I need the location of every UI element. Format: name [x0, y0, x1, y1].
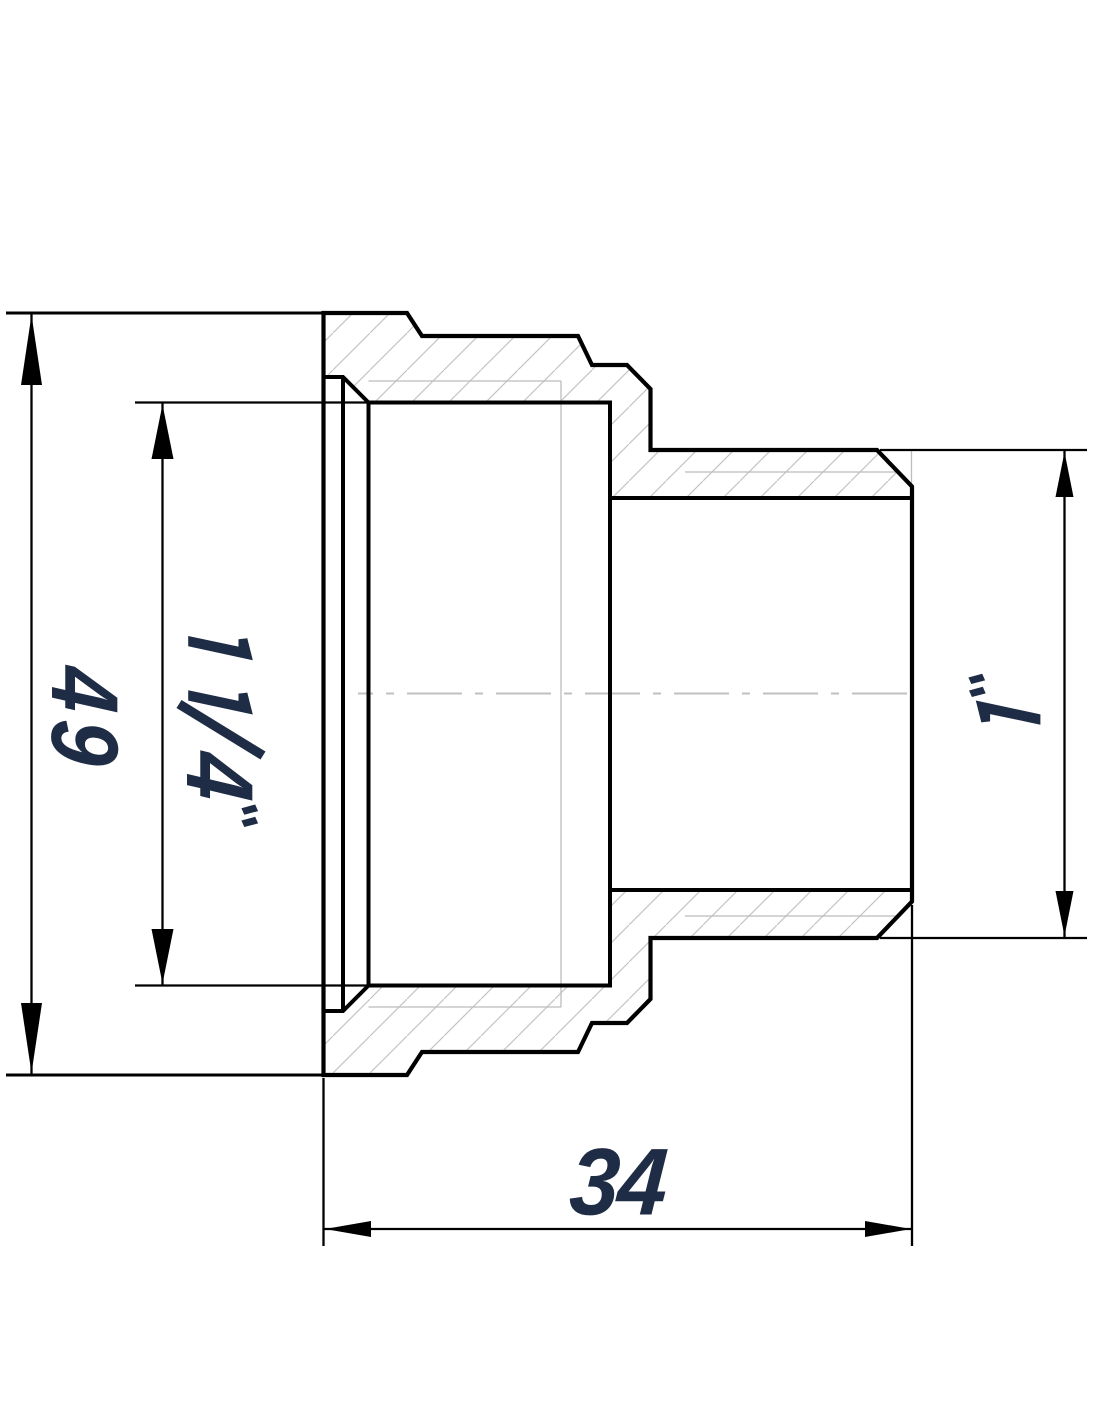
- svg-text:49: 49: [32, 662, 138, 776]
- svg-text:34: 34: [567, 1128, 670, 1235]
- svg-text:4: 4: [166, 748, 272, 804]
